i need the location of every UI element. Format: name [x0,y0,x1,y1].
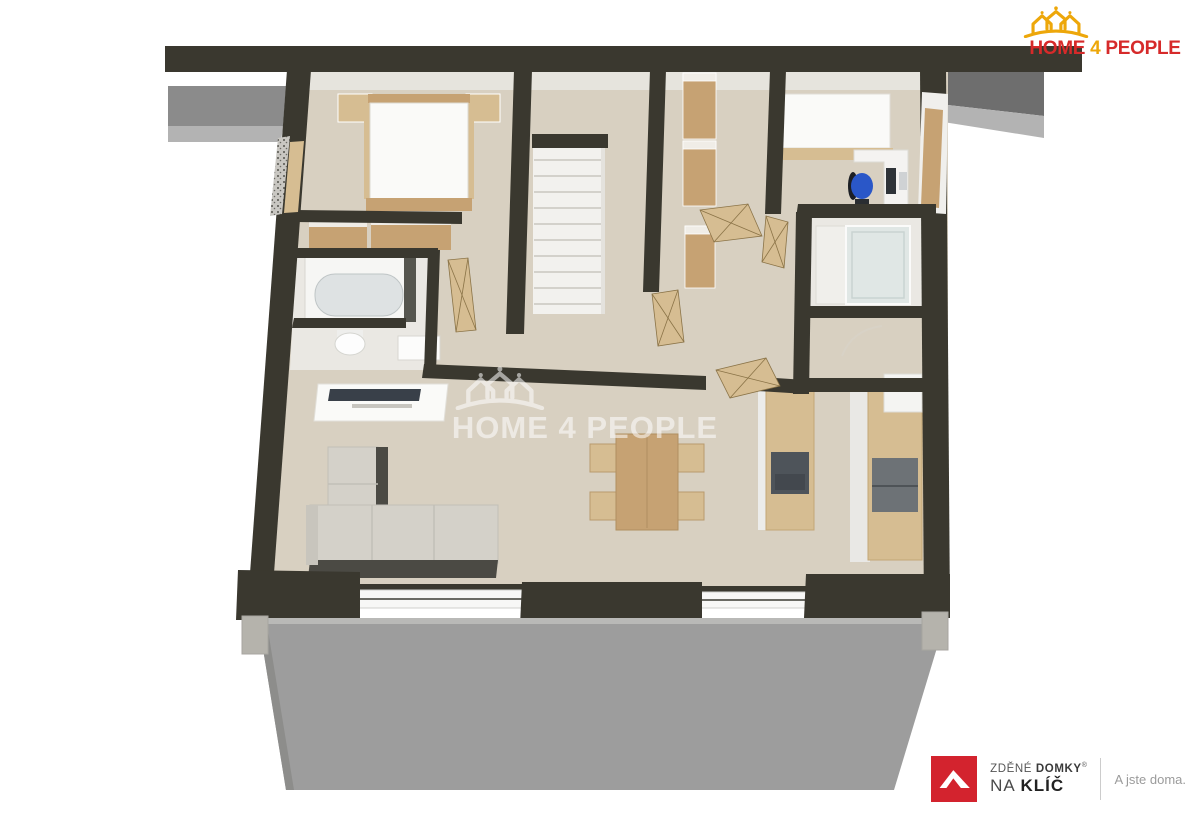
dining-chair [676,444,704,472]
top-wall [165,46,1082,72]
footer-divider [1100,758,1101,800]
dining-chair [590,444,618,472]
door-leaf [762,216,788,268]
header-logo-text: HOME 4 PEOPLE [1020,38,1190,60]
bottom-wall-left [236,570,360,620]
toilet [335,333,365,355]
shower-room [816,226,910,304]
dining-chair [590,492,618,520]
footer-tagline: A jste doma. [1114,772,1186,787]
roof-left [168,86,286,142]
shower-glass [846,226,910,304]
floorplan-image: HOME 4 PEOPLE HOME 4 PEOPLE ZDĚNÉ [0,0,1200,822]
monitor [886,168,896,194]
terrace [258,618,946,790]
footer-line2-word1: NA [990,776,1015,795]
footer-line2-word2: KLÍČ [1021,776,1065,795]
keyboard [899,172,907,190]
footer-brand-line2: NA KLÍČ [990,776,1087,796]
office-chair [851,173,873,199]
footer-brand-word1: ZDĚNÉ [990,763,1032,775]
bed-single [782,94,890,148]
bottom-wall-right [804,574,950,618]
hall-cabinets [683,73,716,288]
header-logo-home: HOME [1029,38,1085,59]
footer-brand-name: ZDĚNÉ DOMKY® NA KLÍČ [990,762,1087,796]
roof-right [937,72,1044,138]
staircase-floor [533,148,605,314]
roof-logo-box [931,756,977,802]
concrete-pier-right [922,612,948,650]
roof-logo-icon [932,757,976,801]
concrete-pier-left [242,616,268,654]
mattress [370,103,468,200]
dining-chair [676,492,704,520]
bed-footboard [366,198,472,211]
ceiling-strip [290,72,944,90]
floorplan-render [0,0,1200,822]
header-logo-people: PEOPLE [1105,38,1180,59]
tv [328,389,421,401]
crown-icon [1020,6,1092,38]
footer-logo: ZDĚNÉ DOMKY® NA KLÍČ A jste doma. [931,756,1186,802]
header-logo: HOME 4 PEOPLE [1020,6,1190,60]
header-logo-four: 4 [1090,38,1100,59]
footer-brand-word2: DOMKY [1036,763,1082,775]
registered-mark: ® [1082,762,1088,769]
door-leaf [652,290,684,346]
